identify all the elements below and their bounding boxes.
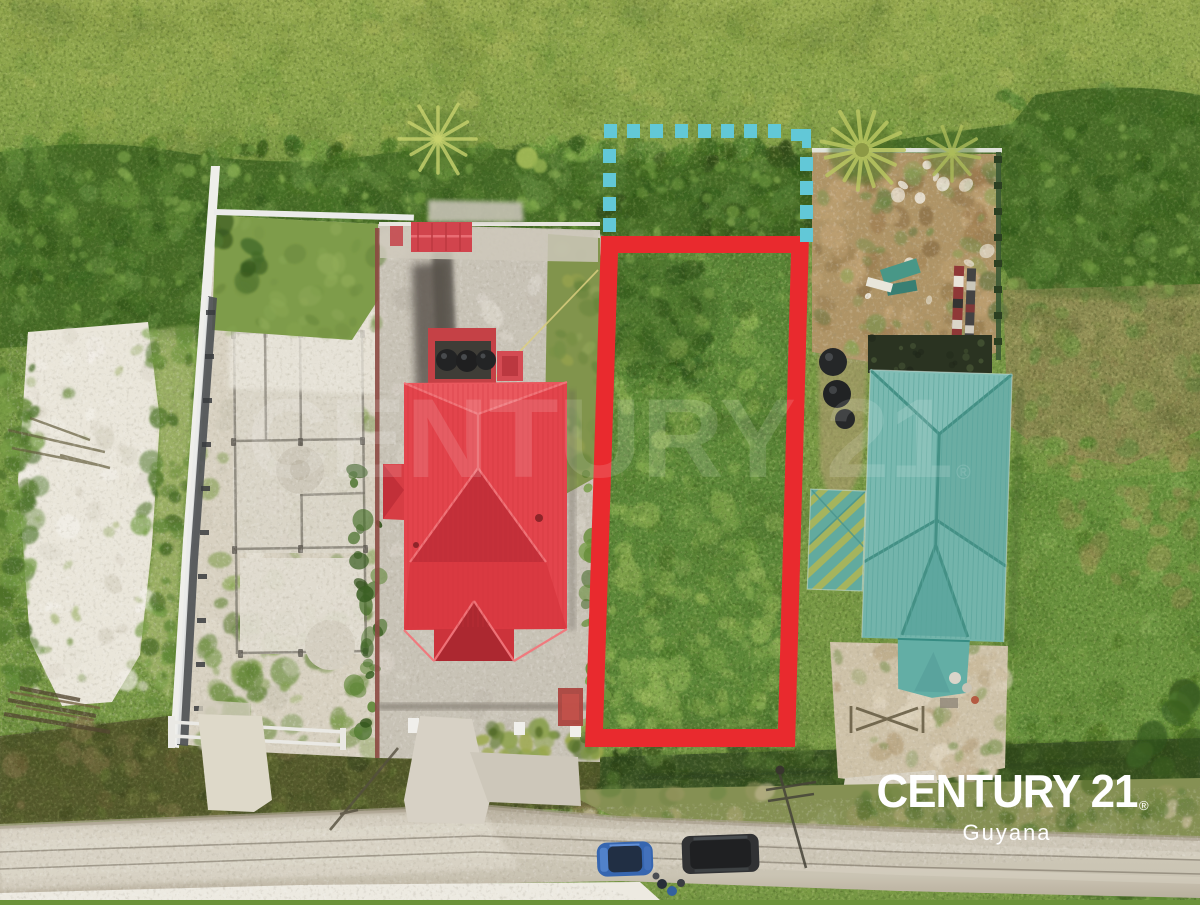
svg-text:Guyana: Guyana [962, 820, 1051, 845]
svg-text:CENTURY 21: CENTURY 21 [247, 376, 953, 501]
svg-text:®: ® [1139, 798, 1149, 813]
svg-text:CENTURY 21: CENTURY 21 [877, 765, 1138, 817]
svg-text:®: ® [956, 462, 971, 484]
